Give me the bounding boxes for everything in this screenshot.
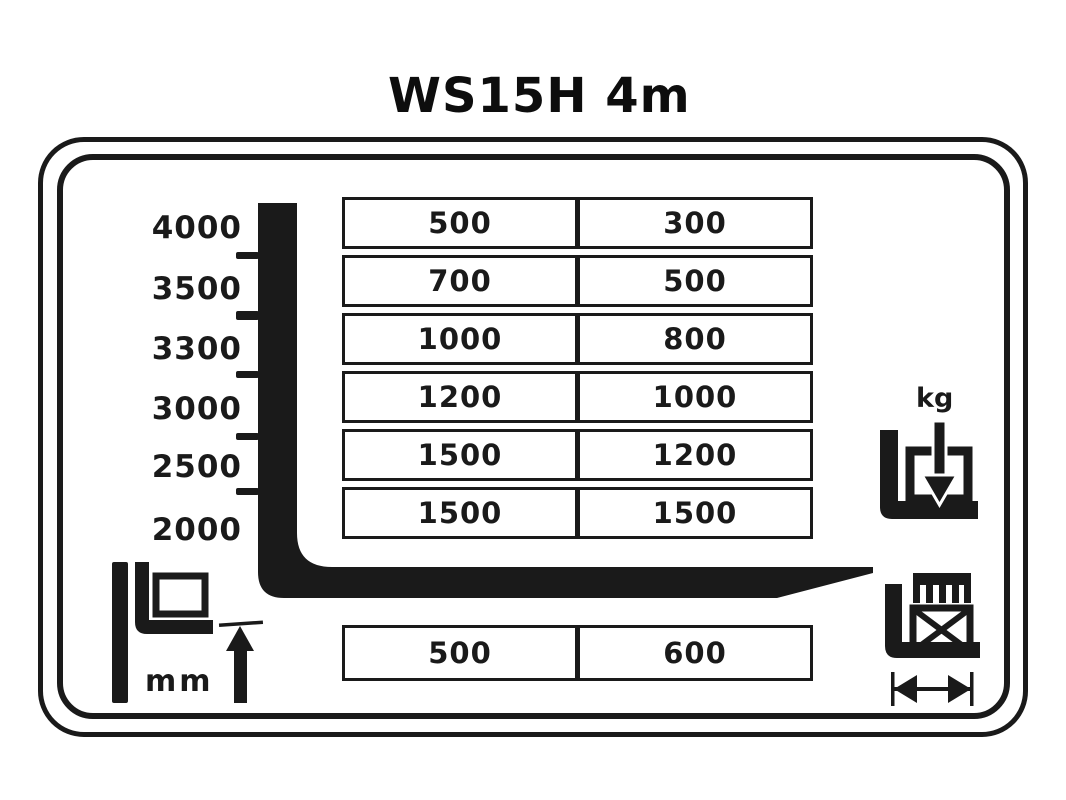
capacity-cell: 1200 [580,432,810,478]
height-label-3000: 3000 [128,391,242,427]
height-label-4000: 4000 [128,210,242,246]
load-center-icon [875,566,990,708]
lift-height-icon: mm [103,556,273,708]
load-center-cell: 600 [580,628,810,678]
height-label-2000: 2000 [128,512,242,548]
capacity-cell: 1200 [345,374,580,420]
height-label-3500: 3500 [128,271,242,307]
capacity-icon-graphic [870,385,988,527]
height-label-3300: 3300 [128,331,242,367]
plate-title: WS15H 4m [388,68,691,124]
capacity-icon: kg [870,385,988,527]
load-center-icon-graphic [875,566,990,708]
capacity-cell: 1000 [580,374,810,420]
capacity-cell: 800 [580,316,810,362]
capacity-cell: 1500 [580,490,810,536]
capacity-row: 500 300 [342,197,813,249]
up-arrow-icon [226,626,254,651]
capacity-cell: 300 [580,200,810,246]
capacity-row: 1200 1000 [342,371,813,423]
lift-height-unit-label: mm [145,664,214,699]
capacity-cell: 500 [580,258,810,304]
capacity-row: 1000 800 [342,313,813,365]
capacity-plate: WS15H 4m 4000 3500 3300 3000 2500 2000 5… [0,0,1066,800]
height-label-2500: 2500 [128,449,242,485]
capacity-table: 500 300 700 500 1000 800 1200 1000 1500 … [342,197,813,545]
load-box-icon [156,576,205,614]
capacity-cell: 500 [345,200,580,246]
load-center-cell: 500 [345,628,580,678]
load-center-row: 500 600 [342,625,813,681]
capacity-cell: 700 [345,258,580,304]
capacity-cell: 1500 [345,490,580,536]
down-arrow-shaft [933,421,946,477]
height-limit-line-icon [219,620,263,627]
capacity-row: 1500 1200 [342,429,813,481]
capacity-row: 700 500 [342,255,813,307]
capacity-cell: 1000 [345,316,580,362]
load-center-table: 500 600 [342,625,813,681]
mast-bar-icon [112,562,128,703]
up-arrow-shaft [234,649,247,703]
ruler-mm-icon [913,573,971,603]
capacity-row: 1500 1500 [342,487,813,539]
load-center-arrow-icon [891,672,974,706]
capacity-cell: 1500 [345,432,580,478]
